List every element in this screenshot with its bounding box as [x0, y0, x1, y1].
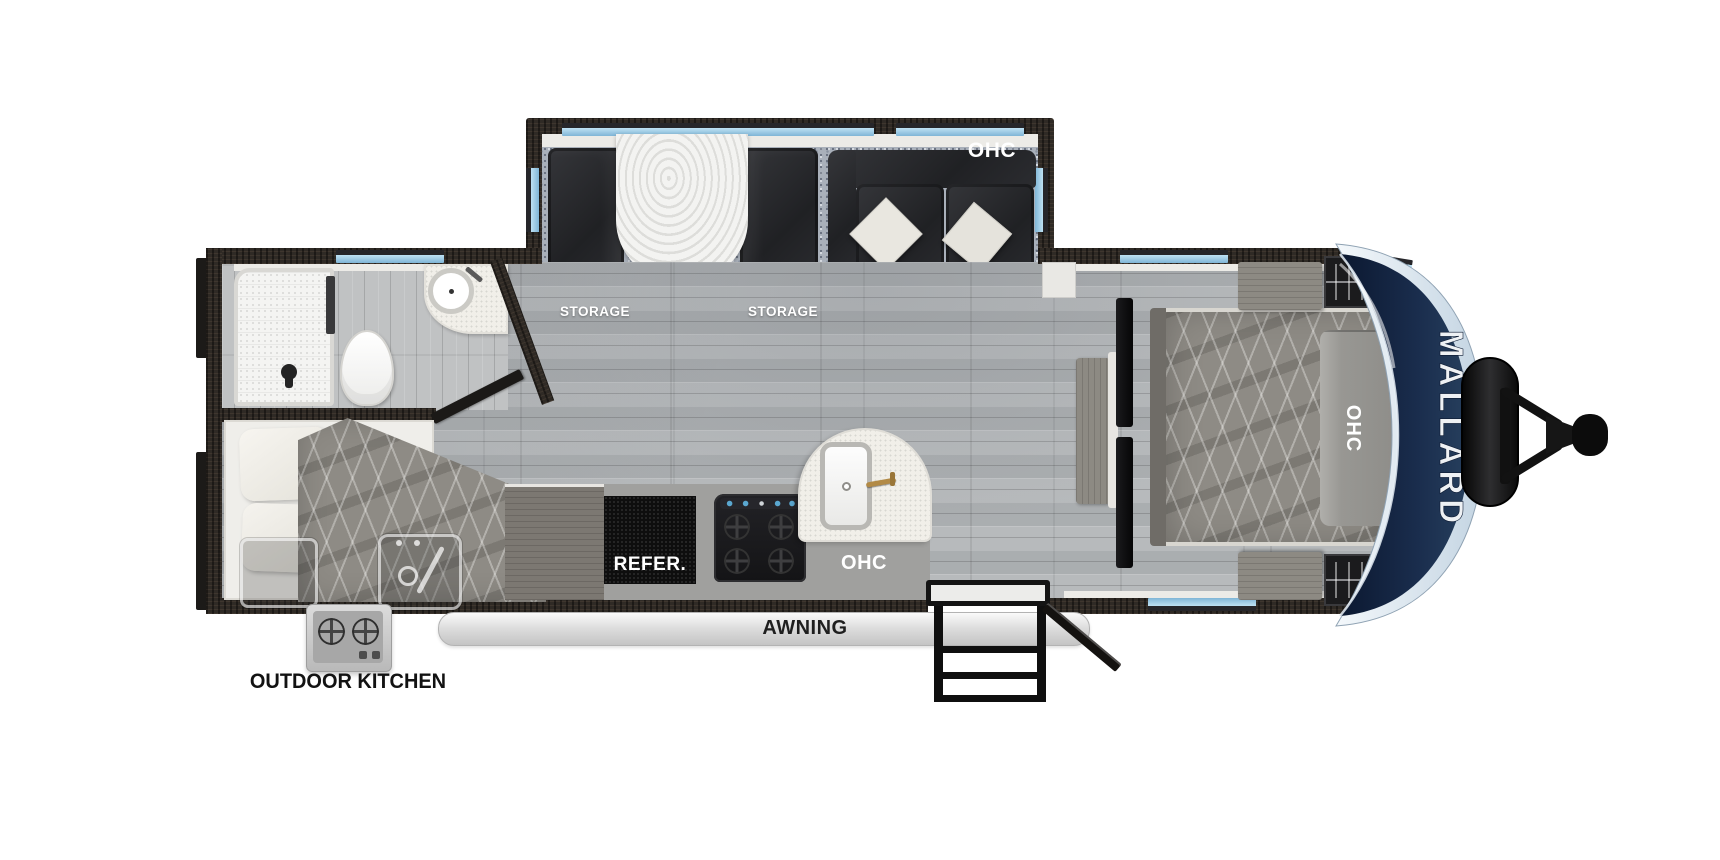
step-rail-icon: [934, 606, 943, 702]
outdoor-burner-icon: [352, 618, 379, 645]
dinette-table: [616, 134, 748, 282]
refrigerator: REFER.: [604, 496, 696, 584]
kitchen-sink-drain-icon: [842, 482, 851, 491]
bathroom-window-icon: [336, 250, 444, 263]
burner-icon: [724, 514, 750, 540]
burner-icon: [724, 548, 750, 574]
step-rail-icon: [1037, 606, 1046, 702]
tv-icon: [1116, 437, 1133, 568]
slideout-right-window-icon: [1035, 168, 1048, 232]
outdoor-cooktop: [306, 604, 392, 672]
step-rung-icon: [934, 695, 1046, 702]
kitchen-counter-left: [505, 484, 604, 600]
kitchen-faucet-handle-icon: [890, 472, 895, 486]
entry-steps: [934, 606, 1046, 702]
outdoor-kitchen-hatch-outline-icon: [240, 538, 318, 608]
outdoor-sink-knob-icon: [396, 540, 402, 546]
tv-console: [1076, 358, 1110, 504]
outdoor-knob-icon: [359, 651, 367, 659]
step-rung-icon: [934, 646, 1046, 653]
awning-label: AWNING: [757, 617, 853, 640]
outdoor-kitchen-label: OUTDOOR KITCHEN: [245, 670, 450, 694]
bedroom-window-top-icon: [1120, 250, 1228, 263]
slideout-ohc-label: OHC: [958, 139, 1026, 163]
bed-foot-board: [1150, 308, 1166, 546]
storage-label-left: STORAGE: [556, 304, 634, 319]
floorplan-canvas: OHC STORAGE STORAGE REFER.: [0, 0, 1720, 860]
outdoor-knob-icon: [372, 651, 380, 659]
outdoor-sink-drain-icon: [398, 566, 418, 586]
tv-icon: [1116, 298, 1133, 427]
outdoor-sink-outline-icon: [378, 534, 462, 610]
rear-wall: [206, 248, 222, 614]
front-cap-assembly: MALLARD: [1240, 240, 1620, 630]
burner-icon: [768, 548, 794, 574]
outdoor-burner-icon: [318, 618, 345, 645]
entry-step-well: [926, 580, 1050, 606]
slideout-wall-end-cabinet: [1042, 262, 1076, 298]
sofa-window-icon: [896, 123, 1024, 136]
hitch-crossbar-icon: [1500, 388, 1510, 484]
shower-icon: [234, 268, 334, 406]
hitch-ball-icon: [1572, 414, 1608, 456]
burner-icon: [768, 514, 794, 540]
kitchen-ohc-label: OHC: [828, 552, 900, 575]
bath-sink-drain-icon: [449, 289, 454, 294]
step-rung-icon: [934, 672, 1046, 679]
cooktop-controls-icon: [720, 498, 800, 509]
outdoor-sink-knob-icon: [414, 540, 420, 546]
refrigerator-label: REFER.: [614, 554, 687, 576]
shower-drain-icon: [285, 377, 293, 388]
shower-door-icon: [326, 276, 335, 334]
slideout-left-window-icon: [526, 168, 539, 232]
storage-label-right: STORAGE: [744, 304, 822, 319]
